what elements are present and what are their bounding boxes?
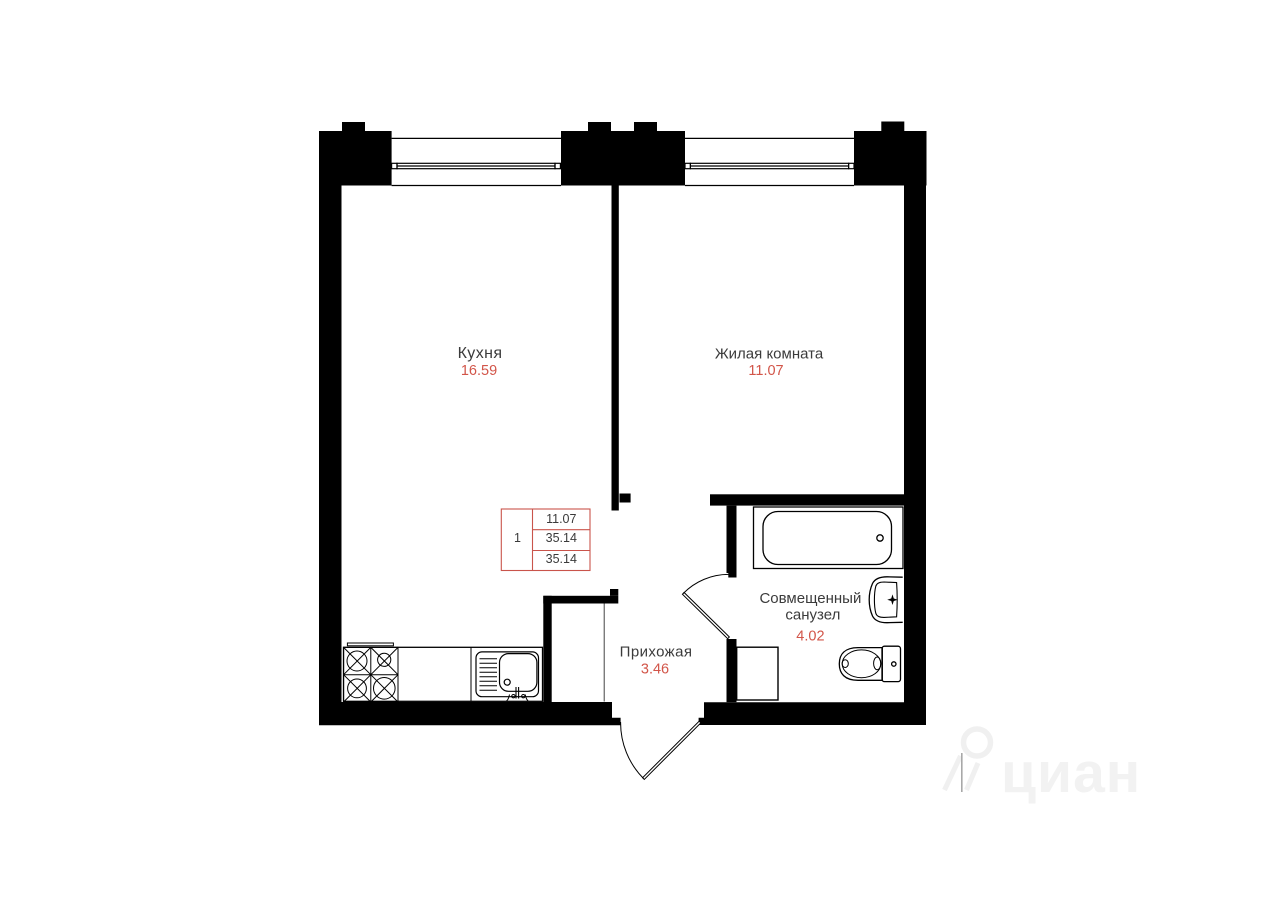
svg-text:16.59: 16.59 [461,363,497,379]
svg-text:Жилая комната: Жилая комната [715,346,824,363]
svg-text:11.07: 11.07 [748,363,783,379]
svg-text:11.07: 11.07 [546,512,576,526]
svg-text:3.46: 3.46 [641,661,669,677]
svg-text:4.02: 4.02 [796,629,824,645]
svg-text:Совмещенный: Совмещенный [759,590,861,607]
svg-text:35.14: 35.14 [546,531,577,545]
svg-text:Прихожая: Прихожая [620,643,693,660]
svg-text:циан: циан [1001,741,1141,805]
svg-text:Кухня: Кухня [458,345,503,362]
svg-text:35.14: 35.14 [546,552,577,566]
svg-text:санузел: санузел [785,607,840,624]
svg-text:1: 1 [514,531,521,545]
